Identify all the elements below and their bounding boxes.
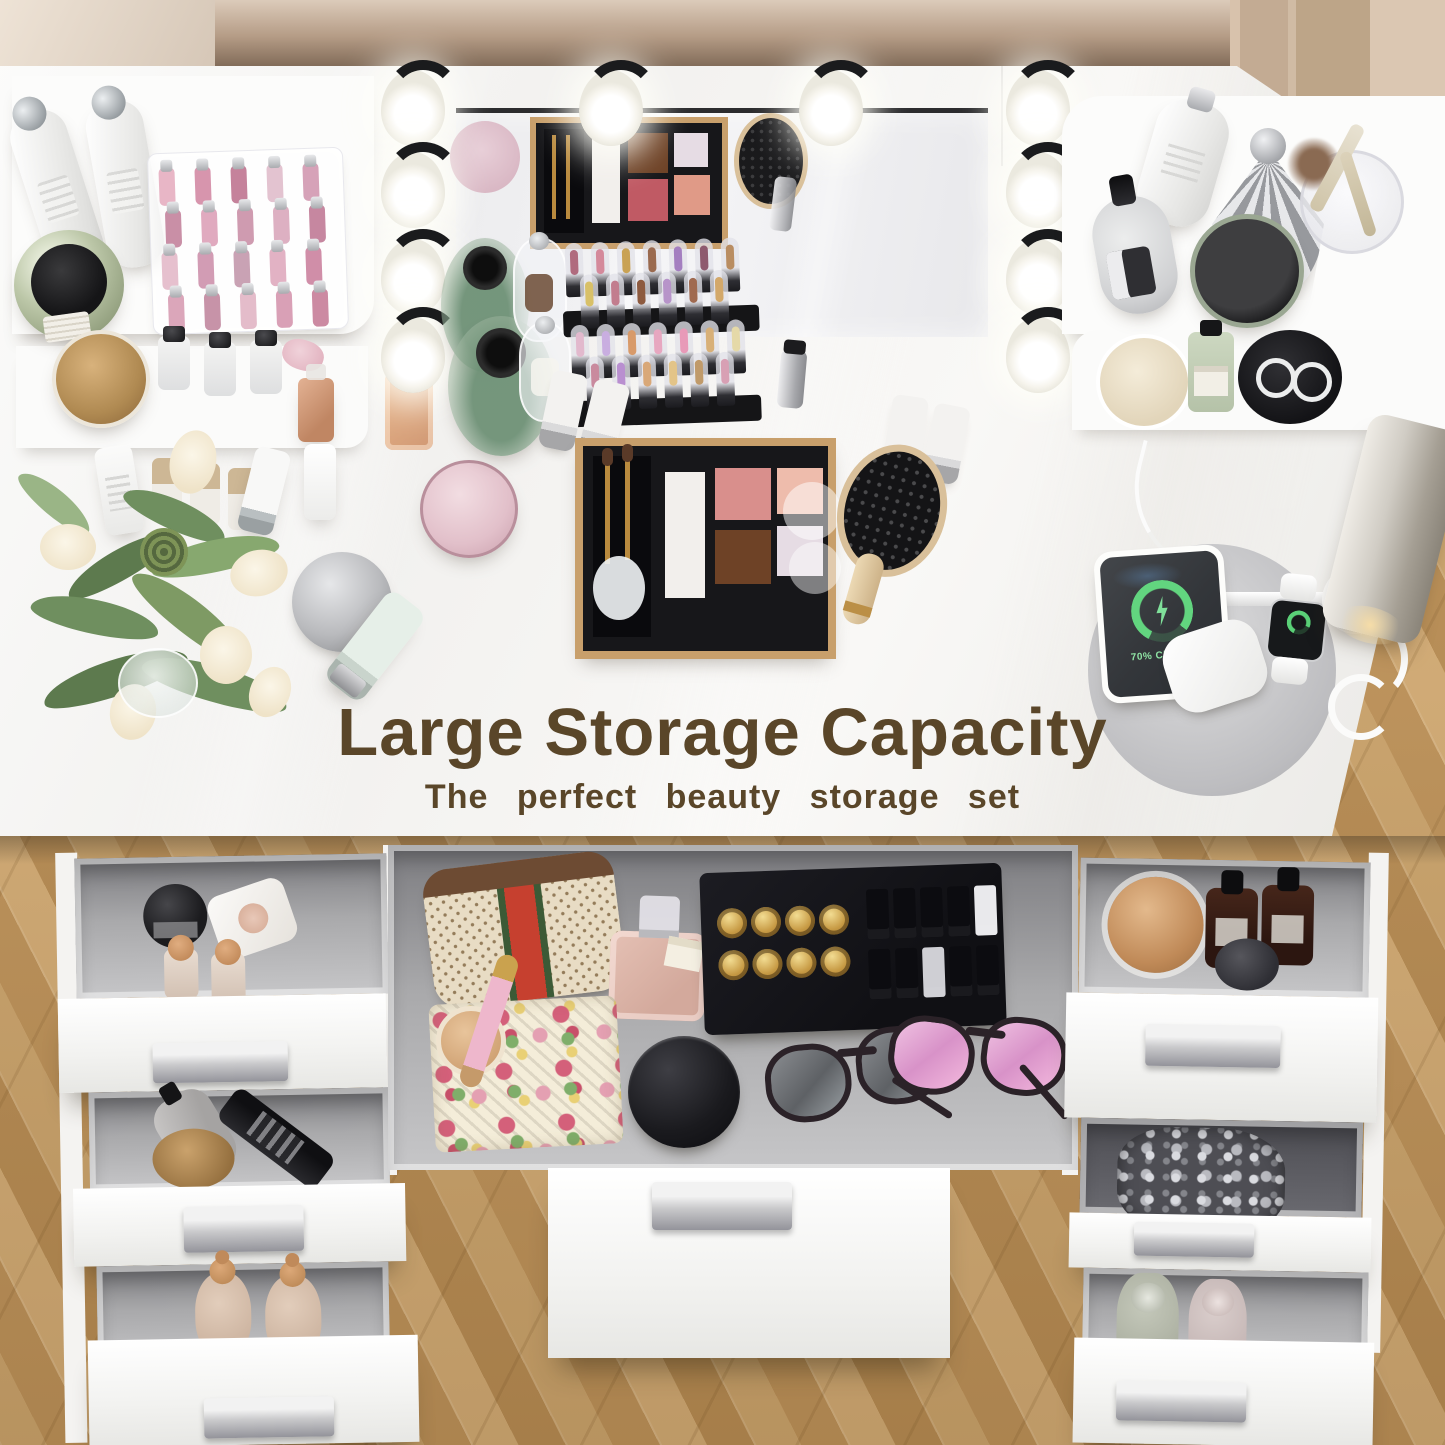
drawer-front[interactable]	[1069, 1212, 1372, 1272]
vanity-product-photo: 70% Charged Large Storage Capacity The p…	[0, 0, 1445, 1445]
drawer-handle[interactable]	[1134, 1222, 1255, 1258]
drawer-front[interactable]	[1064, 992, 1378, 1122]
drawer-front[interactable]	[1073, 1338, 1375, 1445]
drawer-handle[interactable]	[1116, 1380, 1247, 1422]
right-drawer-stack	[0, 0, 1445, 1445]
drawer-handle[interactable]	[1145, 1024, 1281, 1068]
